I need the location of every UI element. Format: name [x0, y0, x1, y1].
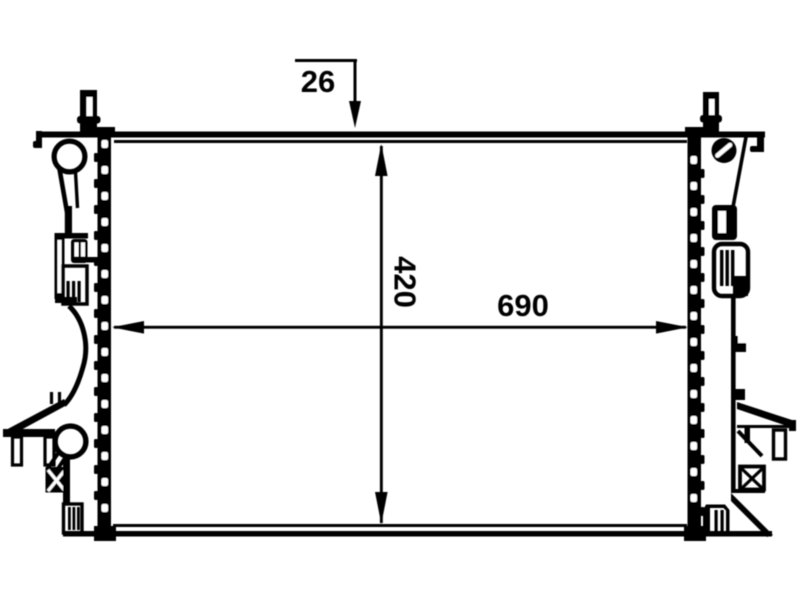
- svg-text:420: 420: [388, 256, 423, 308]
- svg-text:690: 690: [497, 288, 549, 323]
- svg-text:26: 26: [301, 64, 335, 99]
